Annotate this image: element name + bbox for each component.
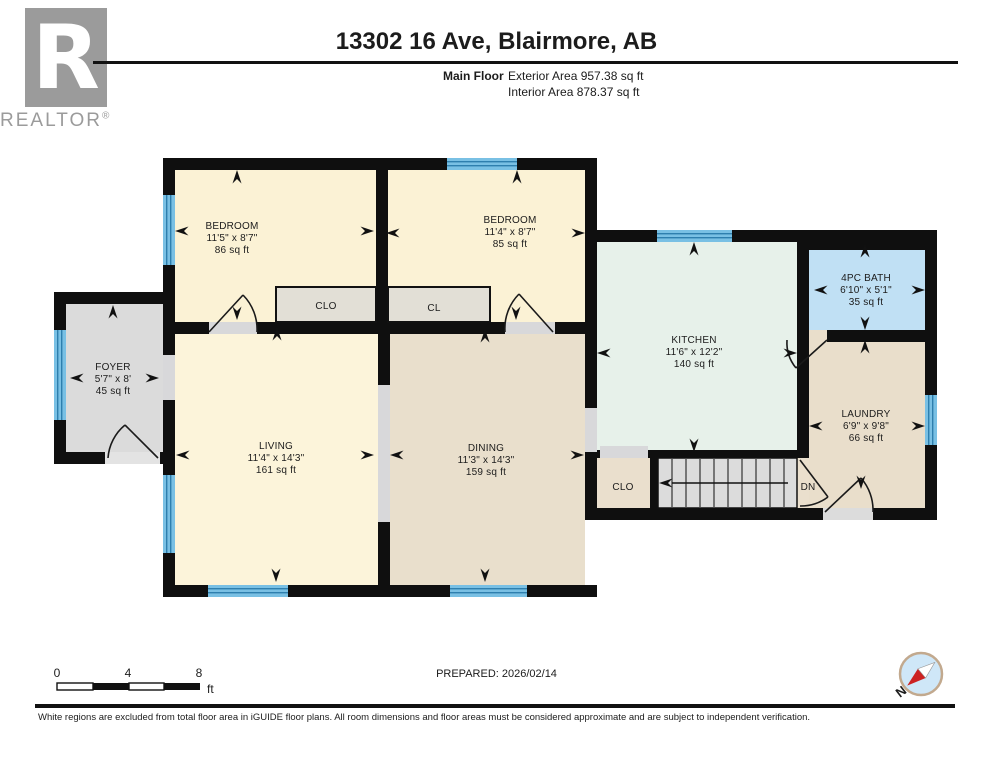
- svg-text:BEDROOM: BEDROOM: [205, 221, 258, 232]
- svg-text:FOYER: FOYER: [95, 362, 130, 373]
- label-kitchen: KITCHEN 11'6" x 12'2" 140 sq ft: [666, 335, 723, 370]
- label-foyer: FOYER 5'7" x 8' 45 sq ft: [95, 362, 131, 397]
- svg-text:LAUNDRY: LAUNDRY: [841, 409, 890, 420]
- window-kitchen-top: [657, 230, 732, 242]
- label-closet-2: CL: [427, 303, 440, 314]
- svg-text:LIVING: LIVING: [259, 441, 293, 452]
- svg-text:161 sq ft: 161 sq ft: [256, 465, 296, 476]
- svg-text:6'10" x 5'1": 6'10" x 5'1": [840, 285, 892, 296]
- svg-text:11'4" x 8'7": 11'4" x 8'7": [485, 227, 536, 238]
- window-bedroom-2-top: [447, 158, 517, 170]
- svg-text:KITCHEN: KITCHEN: [671, 335, 716, 346]
- label-closet-1: CLO: [315, 301, 336, 312]
- window-foyer-left: [54, 330, 66, 420]
- footer-divider: [35, 704, 955, 708]
- svg-text:140 sq ft: 140 sq ft: [674, 359, 714, 370]
- svg-text:159 sq ft: 159 sq ft: [466, 467, 506, 478]
- svg-text:11'5" x 8'7": 11'5" x 8'7": [207, 233, 258, 244]
- svg-text:85 sq ft: 85 sq ft: [493, 239, 527, 250]
- room-kitchen-floor: [597, 242, 797, 450]
- label-hall-closet: CLO: [612, 482, 633, 493]
- svg-text:45 sq ft: 45 sq ft: [96, 386, 130, 397]
- svg-text:BEDROOM: BEDROOM: [483, 215, 536, 226]
- floor-plan-drawing: BEDROOM 11'5" x 8'7" 86 sq ft BEDROOM 11…: [0, 0, 993, 768]
- svg-text:4PC BATH: 4PC BATH: [841, 273, 891, 284]
- window-dining-bottom: [450, 585, 527, 597]
- scale-unit: ft: [207, 682, 214, 696]
- disclaimer-text: White regions are excluded from total fl…: [38, 712, 968, 723]
- window-laundry-right: [925, 395, 937, 445]
- svg-text:11'4" x 14'3": 11'4" x 14'3": [248, 453, 305, 464]
- stairs: [658, 458, 797, 508]
- svg-text:86 sq ft: 86 sq ft: [215, 245, 249, 256]
- svg-text:6'9" x 9'8": 6'9" x 9'8": [843, 421, 889, 432]
- svg-text:66 sq ft: 66 sq ft: [849, 433, 883, 444]
- bath-door-opening: [809, 330, 827, 342]
- svg-text:35 sq ft: 35 sq ft: [849, 297, 883, 308]
- svg-text:5'7" x 8': 5'7" x 8': [95, 374, 131, 385]
- svg-text:11'6" x 12'2": 11'6" x 12'2": [666, 347, 723, 358]
- window-living-bottom: [208, 585, 288, 597]
- floor-plan-page: R REALTOR® 13302 16 Ave, Blairmore, AB M…: [0, 0, 993, 768]
- svg-text:11'3" x 14'3": 11'3" x 14'3": [458, 455, 515, 466]
- window-living-left: [163, 475, 175, 553]
- window-bedroom-1-left: [163, 195, 175, 265]
- prepared-date: PREPARED: 2026/02/14: [0, 668, 993, 680]
- svg-text:DINING: DINING: [468, 443, 504, 454]
- label-stairs-down: DN: [801, 482, 816, 493]
